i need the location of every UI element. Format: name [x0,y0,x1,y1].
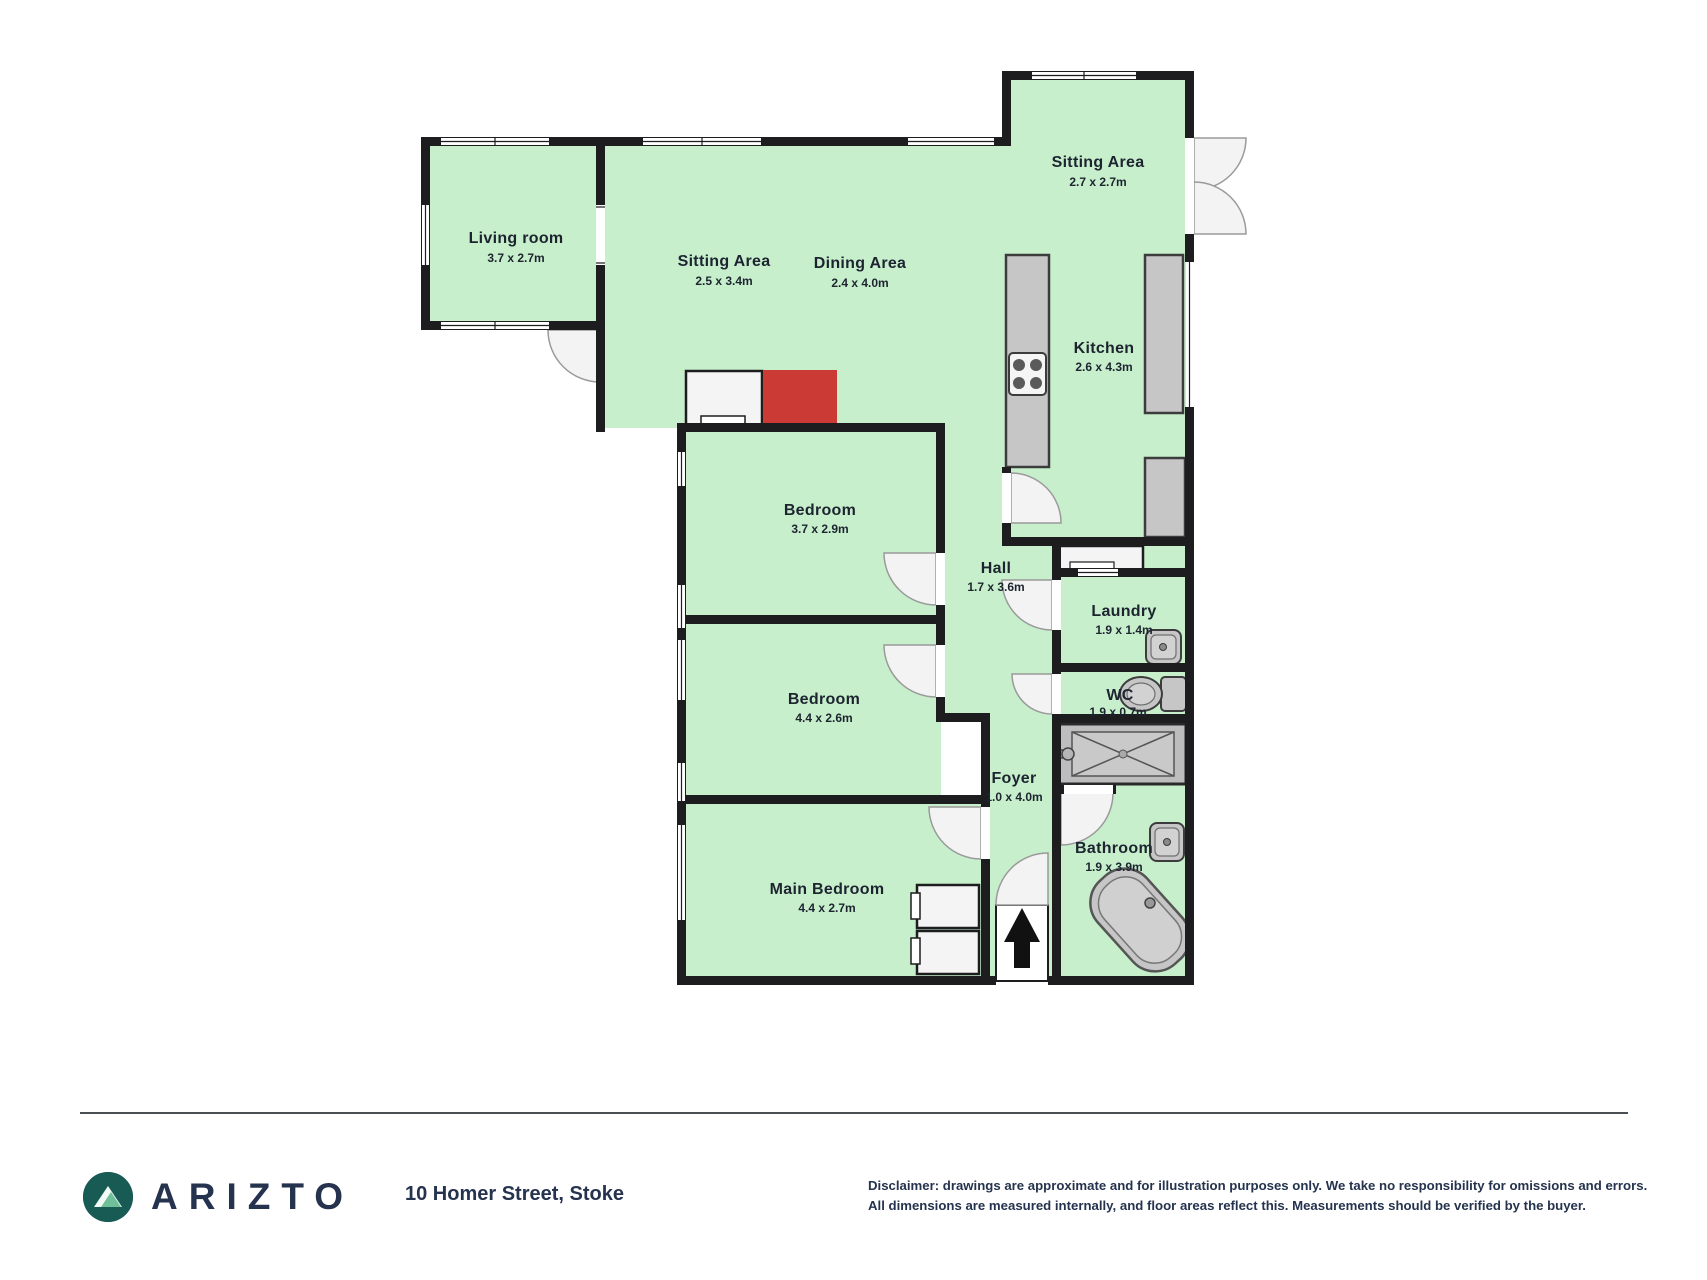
window-bedroom1-left-1 [678,452,685,486]
mountain-logo-icon [83,1172,133,1222]
window-mainbedroom-left [678,825,685,920]
svg-text:1.9 x 1.4m: 1.9 x 1.4m [1095,623,1152,637]
svg-text:4.4 x 2.7m: 4.4 x 2.7m [798,901,855,915]
svg-text:1.9 x 3.9m: 1.9 x 3.9m [1085,860,1142,874]
jamb-bedroom1 [936,553,945,605]
door-living-exterior [548,330,600,382]
svg-text:Hall: Hall [981,560,1012,577]
brand-logo: ARIZTO [83,1172,354,1222]
window-sitting-top [643,138,761,145]
svg-text:Dining Area: Dining Area [814,255,907,272]
door-french-lower [1194,182,1246,234]
window-sitting2-top [1032,72,1136,79]
window-living-bottom [441,322,549,329]
stove-icon [1009,353,1046,395]
svg-text:1.0 x 4.0m: 1.0 x 4.0m [985,790,1042,804]
disclaimer-line-2: All dimensions are measured internally, … [868,1196,1658,1216]
jamb-kitchen [1002,473,1011,523]
window-dining-top [908,138,994,145]
floor-plan: Living room 3.7 x 2.7m Sitting Area 2.5 … [0,0,1707,1280]
kitchen-counter-right [1145,255,1183,413]
svg-text:Living room: Living room [469,230,564,247]
bathroom-sink-icon [1150,823,1184,861]
brand-name: ARIZTO [151,1176,354,1218]
window-laundry-top [1078,569,1118,576]
window-bedroom2-left-2 [678,763,685,801]
footer: ARIZTO 10 Homer Street, Stoke Disclaimer… [0,1150,1707,1250]
window-living-left [422,205,429,265]
property-address: 10 Homer Street, Stoke [405,1183,624,1206]
svg-text:2.4 x 4.0m: 2.4 x 4.0m [831,276,888,290]
window-living-top [441,138,549,145]
svg-text:2.6 x 4.3m: 2.6 x 4.3m [1075,360,1132,374]
svg-text:Bathroom: Bathroom [1075,840,1153,857]
shower-icon [1054,724,1186,784]
kitchen-counter-lower [1145,458,1185,537]
svg-text:Sitting Area: Sitting Area [678,253,771,270]
svg-text:1.7 x 3.6m: 1.7 x 3.6m [967,580,1024,594]
disclaimer-text: Disclaimer: drawings are approximate and… [868,1176,1658,1216]
svg-text:WC: WC [1106,687,1133,704]
jamb-wc [1052,674,1061,714]
svg-text:2.5 x 3.4m: 2.5 x 3.4m [695,274,752,288]
svg-text:Bedroom: Bedroom [784,502,856,519]
svg-text:1.9 x 0.7m: 1.9 x 0.7m [1089,705,1146,719]
fireplace [763,370,837,426]
svg-text:3.7 x 2.7m: 3.7 x 2.7m [487,251,544,265]
svg-text:3.7 x 2.9m: 3.7 x 2.9m [791,522,848,536]
footer-divider [80,1112,1628,1114]
jamb-main-bedroom [981,807,990,859]
window-kitchen-right [1186,262,1193,407]
svg-text:Foyer: Foyer [991,770,1036,787]
svg-text:2.7 x 2.7m: 2.7 x 2.7m [1069,175,1126,189]
window-bedroom1-left-2 [678,585,685,628]
svg-text:Bedroom: Bedroom [788,691,860,708]
window-bedroom2-left-1 [678,640,685,700]
svg-text:Laundry: Laundry [1091,603,1156,620]
svg-text:Kitchen: Kitchen [1074,340,1135,357]
svg-text:Main Bedroom: Main Bedroom [770,881,885,898]
jamb-laundry [1052,580,1061,630]
jamb-french-doors [1185,138,1194,234]
svg-text:Sitting Area: Sitting Area [1052,154,1145,171]
svg-text:4.4 x 2.6m: 4.4 x 2.6m [795,711,852,725]
opening-living-sitting [596,205,605,265]
jamb-bedroom2 [936,645,945,697]
jamb-bathroom [1064,785,1113,794]
disclaimer-line-1: Disclaimer: drawings are approximate and… [868,1176,1658,1196]
